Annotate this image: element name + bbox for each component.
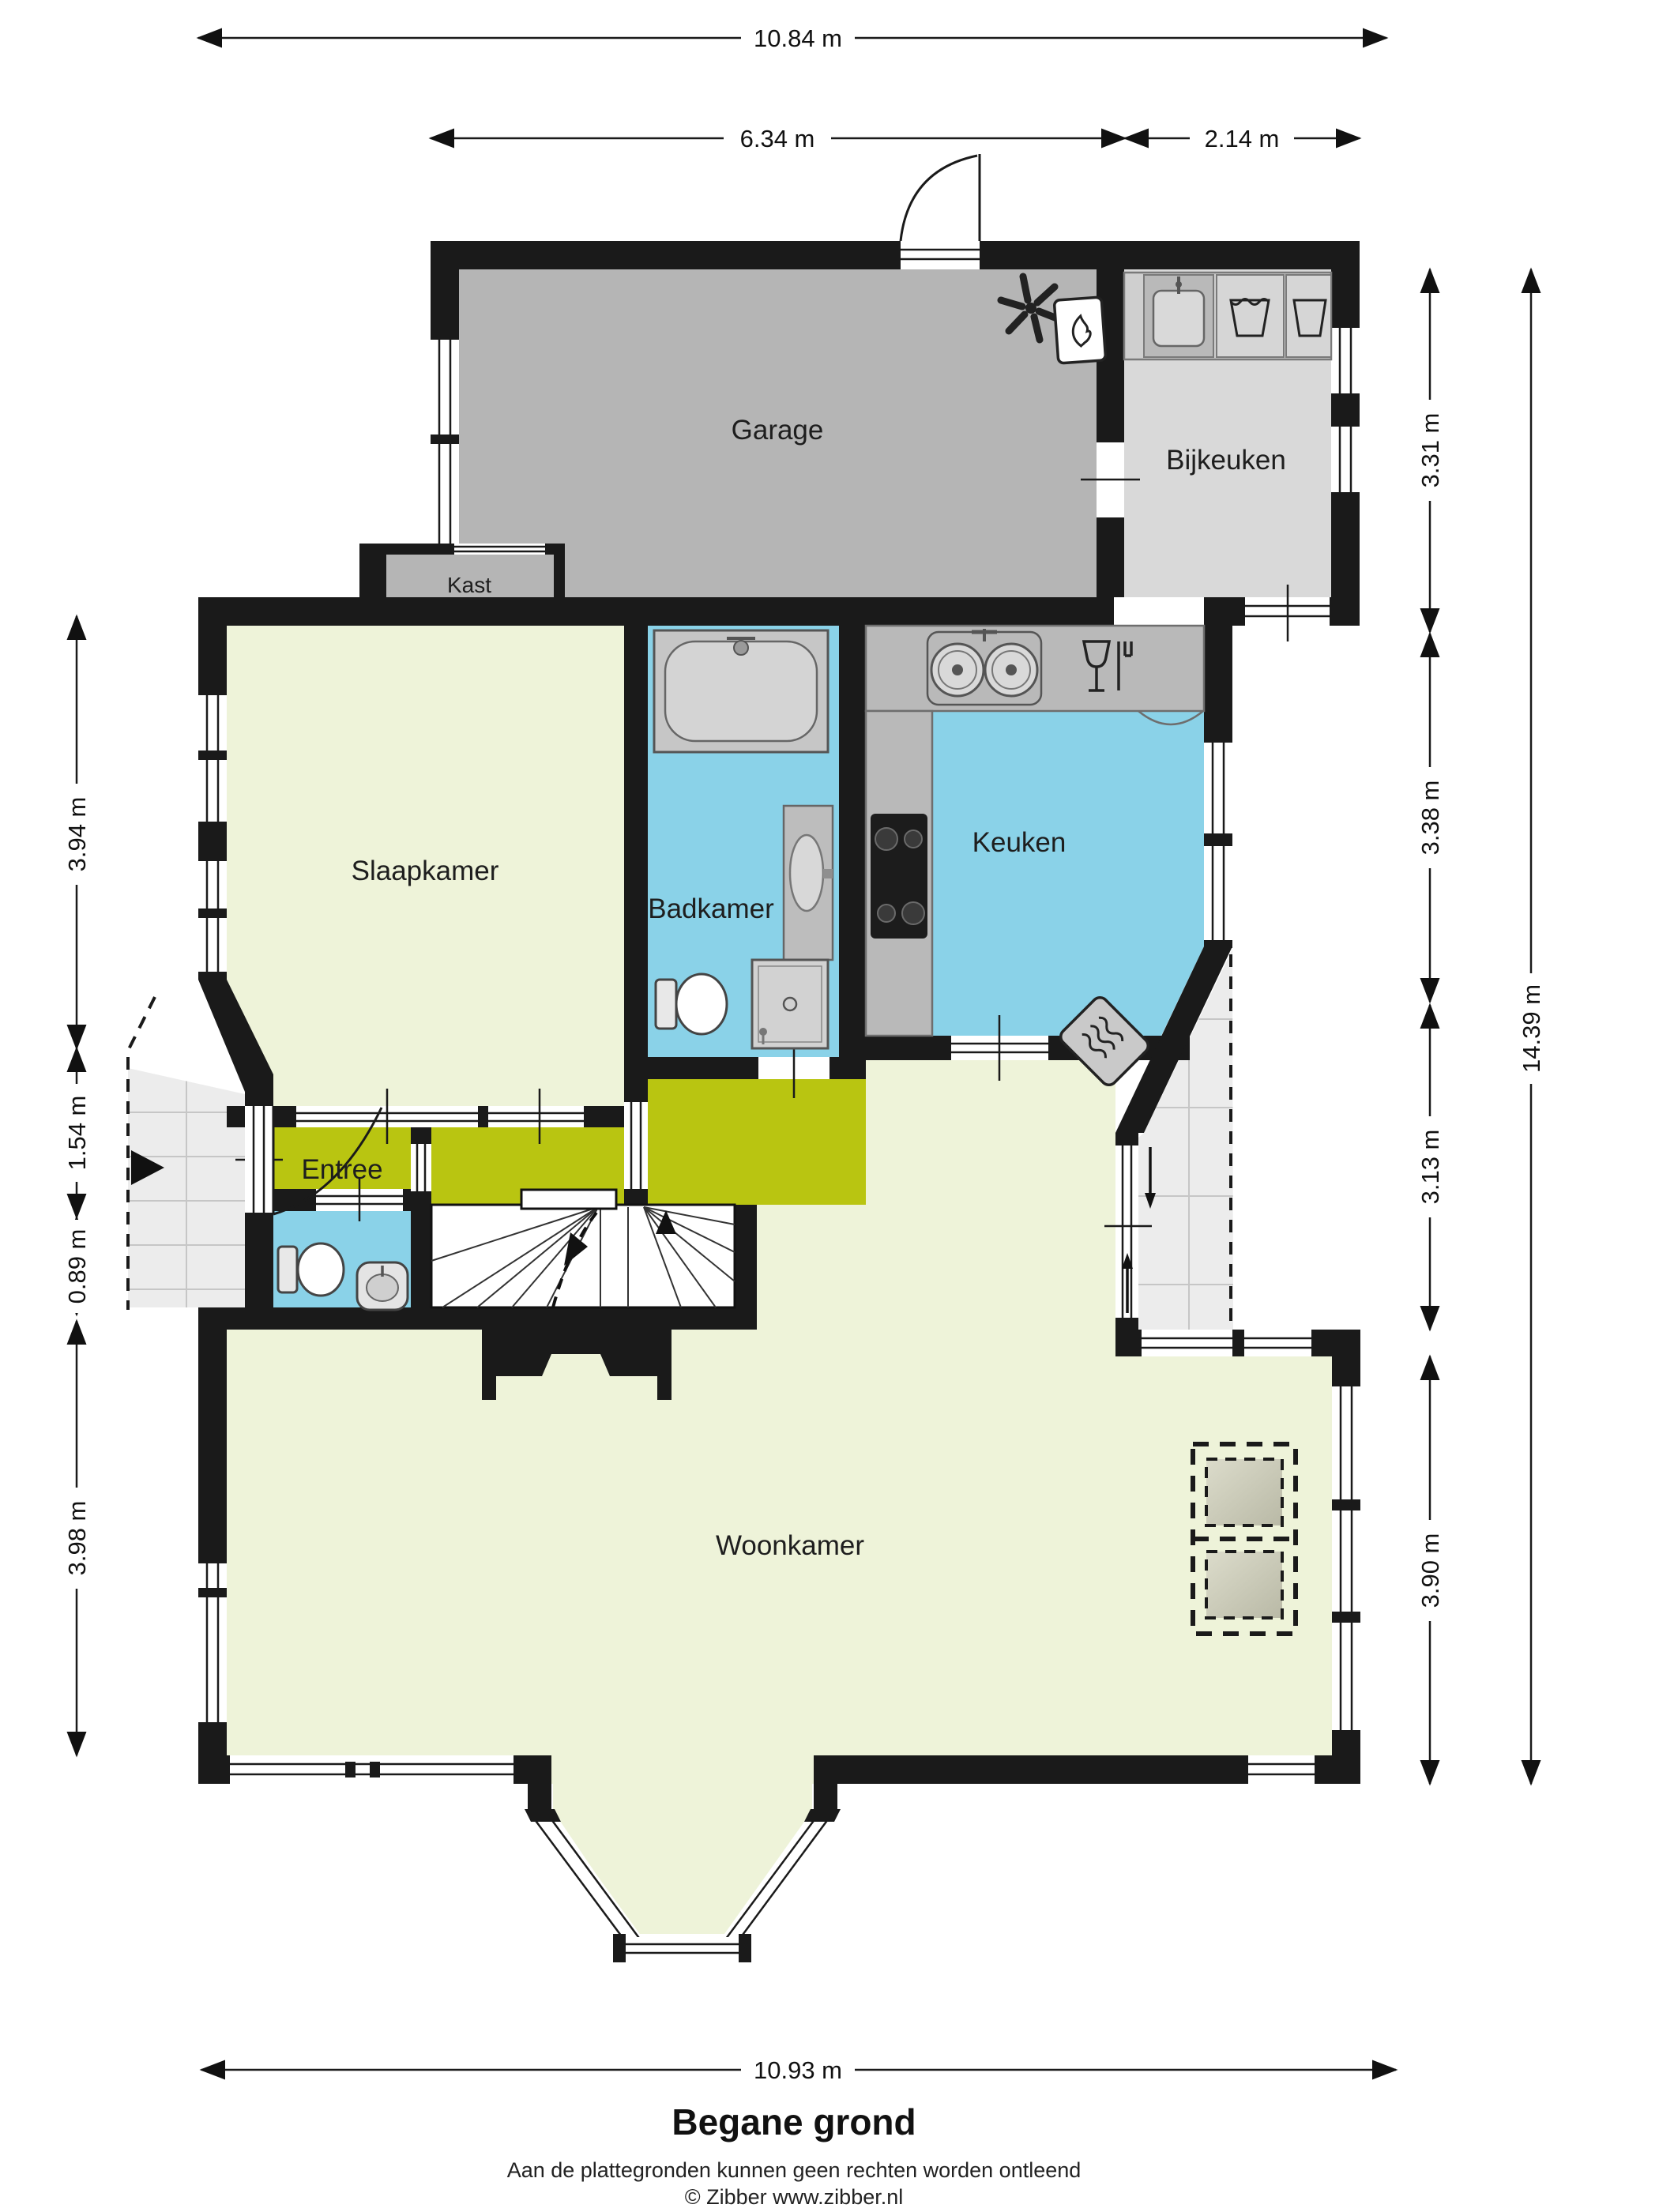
svg-text:3.31 m: 3.31 m [1416, 413, 1444, 488]
dimension-right-woonkamer: 3.90 m [1416, 1356, 1444, 1784]
washing-machine-icon [1217, 275, 1284, 357]
dimension-left-woonkamer: 3.98 m [62, 1321, 91, 1755]
dimension-total-width: 10.84 m [198, 24, 1386, 52]
shower-icon [752, 960, 828, 1048]
room-label-kast: Kast [447, 573, 491, 597]
svg-text:10.84 m: 10.84 m [754, 24, 842, 52]
dimension-left-slaapkamer: 3.94 m [62, 616, 91, 1048]
svg-text:3.13 m: 3.13 m [1416, 1130, 1444, 1205]
hand-basin-icon [357, 1262, 408, 1310]
plan-copyright: © Zibber www.zibber.nl [685, 2185, 904, 2209]
room-label-entree: Entree [301, 1154, 382, 1185]
svg-text:3.94 m: 3.94 m [63, 797, 91, 872]
washing-machine-icon [1286, 275, 1331, 357]
dimension-right-total: 14.39 m [1517, 269, 1545, 1784]
bathtub-icon [654, 630, 828, 752]
svg-text:3.98 m: 3.98 m [63, 1501, 91, 1576]
svg-text:10.93 m: 10.93 m [754, 2056, 842, 2084]
room-label-garage: Garage [732, 415, 824, 446]
floor-plan-page: Garage Bijkeuken Kast Slaapkamer Badkame… [0, 0, 1659, 2212]
dimension-bottom-width: 10.93 m [201, 2056, 1396, 2084]
dimension-left-porch: 0.89 m [62, 1217, 91, 1315]
bay-window-floor [553, 1755, 812, 1934]
room-label-woonkamer: Woonkamer [716, 1530, 864, 1561]
svg-text:6.34 m: 6.34 m [740, 125, 815, 152]
svg-text:2.14 m: 2.14 m [1205, 125, 1280, 152]
plan-disclaimer: Aan de plattegronden kunnen geen rechten… [507, 2158, 1082, 2182]
utility-counter [1124, 273, 1331, 359]
garage-door-icon [901, 154, 980, 269]
dimension-right-terras: 3.13 m [1416, 1005, 1444, 1330]
stairs-icon [431, 1190, 735, 1307]
dimension-left-entree: 1.54 m [62, 1048, 91, 1217]
dimension-right-keuken: 3.38 m [1416, 634, 1444, 1002]
svg-text:14.39 m: 14.39 m [1518, 984, 1545, 1073]
dimension-bijkeuken-width: 2.14 m [1125, 124, 1360, 152]
toilet-icon [656, 974, 727, 1034]
washbasin-icon [784, 806, 833, 960]
dimension-right-bijkeuken: 3.31 m [1416, 269, 1444, 632]
room-label-bijkeuken: Bijkeuken [1166, 445, 1286, 476]
room-label-keuken: Keuken [972, 827, 1066, 858]
plan-title: Begane grond [671, 2101, 916, 2142]
dimension-garage-width: 6.34 m [431, 124, 1125, 152]
cooktop-icon [871, 814, 927, 939]
svg-text:1.54 m: 1.54 m [63, 1096, 91, 1171]
svg-text:3.38 m: 3.38 m [1416, 781, 1444, 856]
footer: Begane grond Aan de plattegronden kunnen… [507, 2101, 1082, 2209]
toilet-icon [278, 1243, 344, 1296]
svg-text:0.89 m: 0.89 m [63, 1229, 91, 1304]
room-label-badkamer: Badkamer [648, 893, 774, 924]
boiler-icon [1054, 297, 1105, 363]
room-label-slaapkamer: Slaapkamer [352, 856, 499, 886]
svg-text:3.90 m: 3.90 m [1416, 1533, 1444, 1608]
floor-plan-drawing: Garage Bijkeuken Kast Slaapkamer Badkame… [0, 0, 1659, 2212]
utility-sink-icon [1144, 275, 1213, 357]
